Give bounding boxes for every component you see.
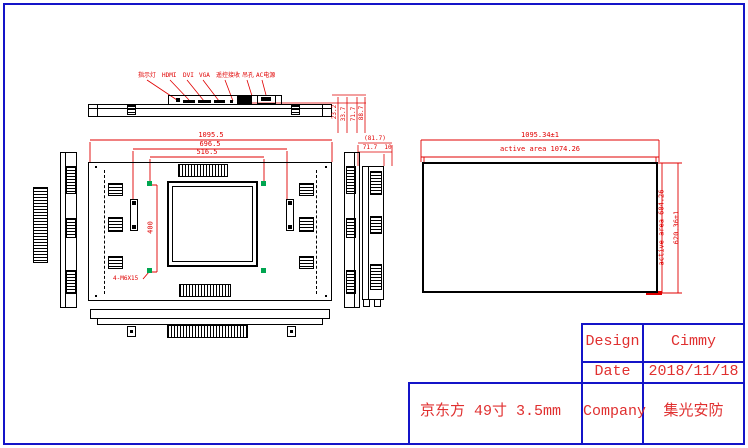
vga-port — [214, 100, 225, 103]
mount-rail-left-screw-bottom — [132, 225, 136, 229]
topview-depth-dim-4: 88.7 — [359, 98, 365, 128]
dim-panel-active-width: active area 1074.26 — [421, 146, 659, 153]
ac-inlet-pin — [261, 97, 271, 101]
corner-screw-tr — [325, 166, 327, 168]
right-strip-vent-3 — [346, 270, 356, 294]
dim-hole-spacing-v: 400 — [148, 213, 155, 243]
port-label-dvi: DVI — [183, 73, 194, 79]
left-strip-vent-2 — [66, 218, 76, 238]
right-strip-vent-2 — [346, 218, 356, 238]
corner-screw-br — [325, 295, 327, 297]
left-strip-vent-3 — [66, 270, 76, 294]
panel-spec-note: 京东方 49寸 3.5mm — [420, 403, 580, 421]
topview-cap-left — [97, 105, 98, 116]
titleblock-value-date: 2018/11/18 — [644, 363, 743, 381]
sideview-vent-1 — [370, 171, 382, 195]
sideview-innerline — [368, 167, 369, 299]
titleblock-label-date: Date — [583, 363, 642, 381]
mount-rail-left-screw-top — [132, 201, 136, 205]
sideview-vent-2 — [370, 216, 382, 234]
vesa-hole-bl — [147, 268, 152, 273]
vent-left-3 — [108, 256, 123, 269]
dim-foot-depth: 10 — [382, 145, 394, 151]
noteblock-line-left — [408, 382, 410, 445]
port-label-hanghole: 吊孔 — [242, 73, 254, 79]
dim-overall-width: 1095.5 — [90, 132, 332, 139]
port-label-ir: 遥控接收 — [216, 73, 240, 79]
vent-right-2 — [299, 217, 314, 232]
right-strip-vent-1 — [346, 166, 356, 194]
titleblock-line-mid2 — [408, 382, 745, 384]
sideview-foot-1 — [363, 299, 370, 307]
bottomview-lip — [97, 318, 323, 325]
topview-depth-dim-2: 33.7 — [341, 99, 347, 129]
sideview-foot-2 — [374, 299, 381, 307]
port-label-vga: VGA — [199, 73, 210, 79]
frontview-innerline-left — [104, 170, 105, 294]
hdmi-port — [183, 100, 195, 103]
frontview-innerline-right — [316, 170, 317, 294]
vesa-hole-tr — [261, 181, 266, 186]
titleblock-value-company: 集光安防 — [644, 403, 743, 421]
vent-right-3 — [299, 256, 314, 269]
titleblock-line-bottom — [408, 443, 745, 445]
topview-cap-right — [322, 105, 323, 116]
vesa-hole-tl — [147, 181, 152, 186]
topview-depth-dim-3: 71.7 — [351, 99, 357, 129]
dim-panel-active-height: active area 604.26 — [659, 178, 666, 278]
left-strip-vent-1 — [66, 166, 76, 194]
left-bracket-strip — [33, 187, 48, 263]
sideview-vent-3 — [370, 264, 382, 290]
port-label-ac: AC电源 — [256, 73, 275, 79]
vent-left-2 — [108, 217, 123, 232]
titleblock-line-top — [581, 323, 745, 325]
corner-screw-tl — [95, 166, 97, 168]
bottomview-grille — [167, 325, 248, 338]
titleblock-label-design: Design — [583, 333, 642, 351]
dim-body-depth: 71.7 — [356, 145, 384, 151]
mount-rail-right-screw-bottom — [288, 225, 292, 229]
vent-left-1 — [108, 183, 123, 196]
bottomview-foot-left-hole — [130, 330, 133, 333]
vesa-hole-callout: 4-M6X15 — [113, 276, 138, 282]
topview-depth-dim-1: 23.2 — [332, 97, 338, 127]
dim-panel-height: 620.36±1 — [674, 178, 681, 278]
port-label-indicator: 指示灯 — [138, 73, 156, 79]
frontview-top-grille — [178, 164, 228, 177]
frontview-bottom-grille — [179, 284, 231, 297]
dim-total-depth: (81.7) — [356, 136, 394, 142]
dim-panel-width: 1095.34±1 — [421, 132, 659, 139]
dim-rail-spacing: 696.5 — [133, 141, 287, 148]
drawing-sheet: 指示灯 HDMI DVI VGA 遥控接收 吊孔 AC电源 23.2 33.7 … — [0, 0, 748, 448]
port-label-hdmi: HDMI — [162, 73, 176, 79]
backcover-opening-inner — [172, 186, 253, 262]
mount-rail-right-screw-top — [288, 201, 292, 205]
panel-outline — [422, 162, 658, 293]
titleblock-value-design: Cimmy — [644, 333, 743, 351]
dvi-port — [198, 100, 211, 103]
titleblock-label-company: Company — [583, 403, 642, 421]
ir-receiver — [230, 100, 233, 103]
dim-hole-spacing-h: 516.5 — [150, 149, 264, 156]
topview-lug-left — [127, 105, 136, 115]
power-switch-block — [237, 96, 252, 104]
corner-screw-bl — [95, 295, 97, 297]
vesa-hole-br — [261, 268, 266, 273]
led-indicator — [176, 98, 180, 102]
bottomview-foot-right-hole — [290, 330, 293, 333]
topview-lug-right — [291, 105, 300, 115]
vent-right-1 — [299, 183, 314, 196]
